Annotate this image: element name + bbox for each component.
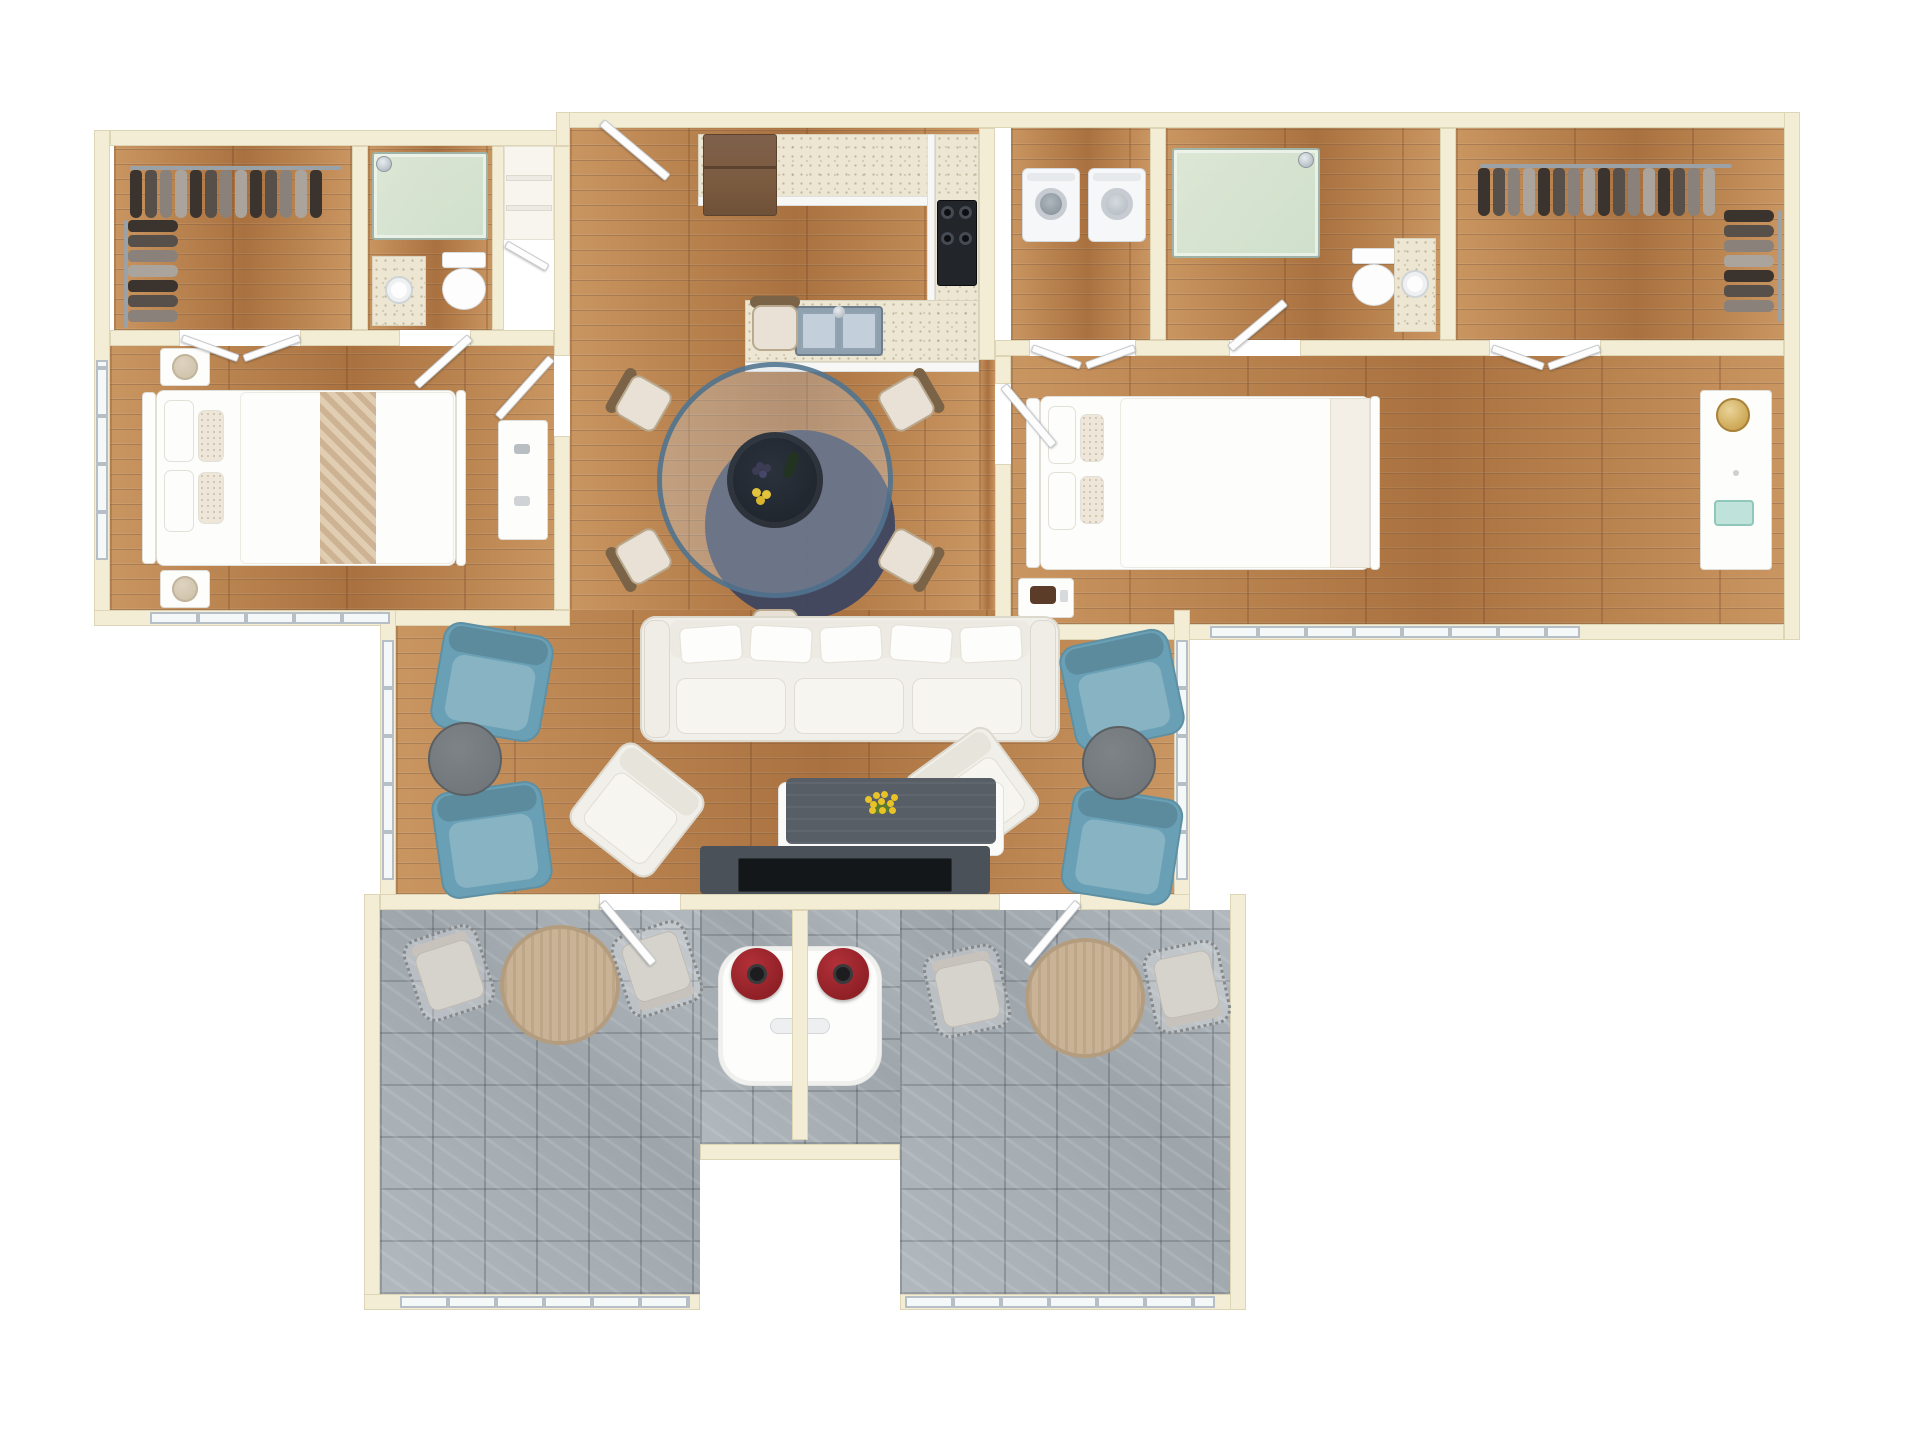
wall-leftwing-mid-c [470, 330, 554, 346]
garment [128, 310, 178, 322]
garment [1724, 240, 1774, 252]
coffee-table-top [786, 778, 996, 844]
gold-lamp-icon [1716, 398, 1750, 432]
sofa-arm [644, 620, 670, 738]
wall-east-outer [1784, 112, 1800, 640]
bed-left-accent-pillow [198, 472, 224, 524]
nightstand-phone [1060, 590, 1068, 602]
wall-alcove-south [700, 1144, 900, 1160]
window-patio-left-railing [400, 1296, 690, 1308]
garment [1628, 168, 1640, 216]
garment [1724, 255, 1774, 267]
desk-decor [514, 496, 530, 506]
garment [1724, 285, 1774, 297]
bed-left-headboard [142, 392, 156, 564]
garment [1523, 168, 1535, 216]
wall-rightwing-mid-c [1300, 340, 1490, 356]
lamp-knob-icon [836, 967, 850, 981]
closet-right-garments-side [1724, 210, 1776, 324]
bed-left-throw-blanket [320, 392, 376, 564]
wall-rightwing-mid-d [1600, 340, 1784, 356]
garment [235, 170, 247, 218]
sink-basin [801, 312, 837, 350]
chair-cushion [1152, 949, 1221, 1021]
garment [128, 235, 178, 247]
sofa-pillow [959, 624, 1023, 663]
garment [145, 170, 157, 218]
garment [1583, 168, 1595, 216]
bed-right-folded-blanket [1330, 398, 1370, 568]
closet-left-garments-side [128, 220, 180, 330]
sofa-arm [1030, 620, 1056, 738]
wall-leftwing-east-b [554, 436, 570, 610]
wall-closet1-bath1 [352, 146, 368, 330]
wall-living-south-a [380, 894, 600, 910]
nightstand-tray [1030, 586, 1056, 604]
garment [280, 170, 292, 218]
shower-right [1172, 148, 1320, 258]
patio-table-right [1025, 938, 1145, 1058]
sofa-pillow [819, 624, 883, 663]
wall-bedroom2-west-a [995, 356, 1011, 384]
wall-top-main [556, 112, 1800, 128]
garment [1508, 168, 1520, 216]
stove-burner-icon [941, 206, 954, 219]
garment [128, 220, 178, 232]
garment [1688, 168, 1700, 216]
garment [1493, 168, 1505, 216]
closet-right-garments-top [1478, 168, 1734, 220]
garment [1724, 210, 1774, 222]
garment [220, 170, 232, 218]
wall-alcove-divider-top [792, 910, 808, 1140]
floor-hall-right [979, 360, 995, 626]
sink-basin [841, 312, 877, 350]
wall-rightwing-mid-b [1135, 340, 1230, 356]
toilet-left-bowl [442, 268, 486, 310]
bed-left-pillow [164, 470, 194, 532]
garment [128, 280, 178, 292]
sofa-pillow [679, 624, 743, 664]
shower-head-icon [376, 156, 392, 172]
garment [1703, 168, 1715, 216]
garment [190, 170, 202, 218]
washer-door-icon [1035, 188, 1067, 220]
garment [1658, 168, 1670, 216]
wall-bath1-niche [492, 146, 504, 330]
chair-seat [1074, 818, 1167, 896]
window-bedroom-left-west [96, 360, 108, 560]
wall-leftwing-east-a [554, 146, 570, 356]
shower-head-icon [1298, 152, 1314, 168]
closet-left-garments-top [130, 170, 344, 222]
garment [1613, 168, 1625, 216]
chair-seat [752, 305, 798, 351]
garment [1553, 168, 1565, 216]
garment [128, 295, 178, 307]
bed-right-pillow [1048, 472, 1076, 530]
wall-patio-right-east [1230, 894, 1246, 1310]
bed-left-accent-pillow [198, 410, 224, 462]
garment [160, 170, 172, 218]
garment [1724, 225, 1774, 237]
dining-chair [748, 296, 802, 354]
bed-right-pillow [1048, 406, 1076, 464]
window-living-west [382, 640, 394, 880]
dryer-door-icon [1101, 188, 1133, 220]
sofa-seat-cushion [794, 678, 904, 734]
window-bedroom-right-south [1210, 626, 1580, 638]
accent-chair-blue [1058, 784, 1186, 908]
floorplan-canvas [0, 0, 1920, 1440]
garment [1673, 168, 1685, 216]
wall-patio-left-west [364, 894, 380, 1310]
garment [1478, 168, 1490, 216]
garment [1538, 168, 1550, 216]
garment [295, 170, 307, 218]
closet-right-rail-side [1778, 210, 1782, 322]
table-lamp-icon [172, 576, 198, 602]
garment [265, 170, 277, 218]
garment [130, 170, 142, 218]
dresser-knob [1733, 470, 1739, 476]
wall-leftwing-mid-b [300, 330, 400, 346]
garment [310, 170, 322, 218]
fruit-lemons-icon [752, 488, 761, 497]
garment [1598, 168, 1610, 216]
wall-top-jog [556, 112, 570, 146]
faucet-icon [833, 306, 845, 318]
niche-door [504, 241, 550, 272]
stove-burner-icon [959, 206, 972, 219]
niche-shelf [506, 175, 552, 181]
vanity-right-sink [1401, 270, 1429, 298]
dryer-control-panel [1093, 173, 1141, 181]
teal-decor-box [1714, 500, 1754, 526]
bed-left-pillow [164, 400, 194, 462]
dining-centerpiece [727, 432, 823, 528]
side-table-round-right [1082, 726, 1156, 800]
vanity-left-sink [385, 276, 413, 304]
toilet-left-tank [442, 252, 486, 268]
sofa-pillow [749, 624, 813, 663]
bed-right-accent-pillow [1080, 414, 1104, 462]
sofa-pillow [889, 624, 953, 664]
bed-right-accent-pillow [1080, 476, 1104, 524]
accent-chair-blue [429, 779, 555, 902]
bed-left-footboard [456, 390, 466, 566]
garment [205, 170, 217, 218]
sofa-seat-cushion [676, 678, 786, 734]
lamp-knob-icon [750, 967, 764, 981]
wall-kitchen-east [979, 128, 995, 360]
yellow-flowers-icon [878, 798, 885, 805]
desk-decor [514, 444, 530, 454]
sofa-seat-cushion [912, 678, 1022, 734]
wall-rightwing-mid-a [995, 340, 1030, 356]
refrigerator-divider [703, 166, 777, 169]
tv-screen [738, 858, 952, 892]
patio-table-left [500, 925, 620, 1045]
wall-laundry-east [1150, 128, 1166, 340]
window-patio-right-railing [905, 1296, 1215, 1308]
stove-burner-icon [959, 232, 972, 245]
garment [175, 170, 187, 218]
desk-bedroom-left [498, 420, 548, 540]
wall-living-south-b [680, 894, 1000, 910]
chair-seat [443, 653, 537, 733]
garment [128, 250, 178, 262]
bed-right-footboard [1370, 396, 1380, 570]
garment [1568, 168, 1580, 216]
wall-bedroom2-west-b [995, 464, 1011, 640]
chair-cushion [933, 958, 1002, 1030]
garment [1724, 300, 1774, 312]
garment [1724, 270, 1774, 282]
side-table-round-left [428, 722, 502, 796]
toilet-right-tank [1352, 248, 1396, 264]
sofa [640, 616, 1060, 742]
chair-seat [447, 812, 539, 889]
fruit-grapes-icon [756, 462, 764, 470]
washer-control-panel [1027, 173, 1075, 181]
red-table-lamp [731, 948, 783, 1000]
wall-bath2-east [1440, 128, 1456, 340]
window-bedroom-left-south [150, 612, 390, 624]
red-table-lamp [817, 948, 869, 1000]
garment [250, 170, 262, 218]
wall-top-leftwing [110, 130, 570, 146]
toilet-right-bowl [1352, 264, 1396, 306]
stove-burner-icon [941, 232, 954, 245]
wall-leftwing-mid-a [110, 330, 180, 346]
floor-entry-niche [504, 146, 554, 240]
garment [1643, 168, 1655, 216]
table-lamp-icon [172, 354, 198, 380]
garment [128, 265, 178, 277]
refrigerator [703, 134, 777, 216]
kitchen-cabinet-face-east [927, 134, 935, 304]
niche-shelf [506, 205, 552, 211]
